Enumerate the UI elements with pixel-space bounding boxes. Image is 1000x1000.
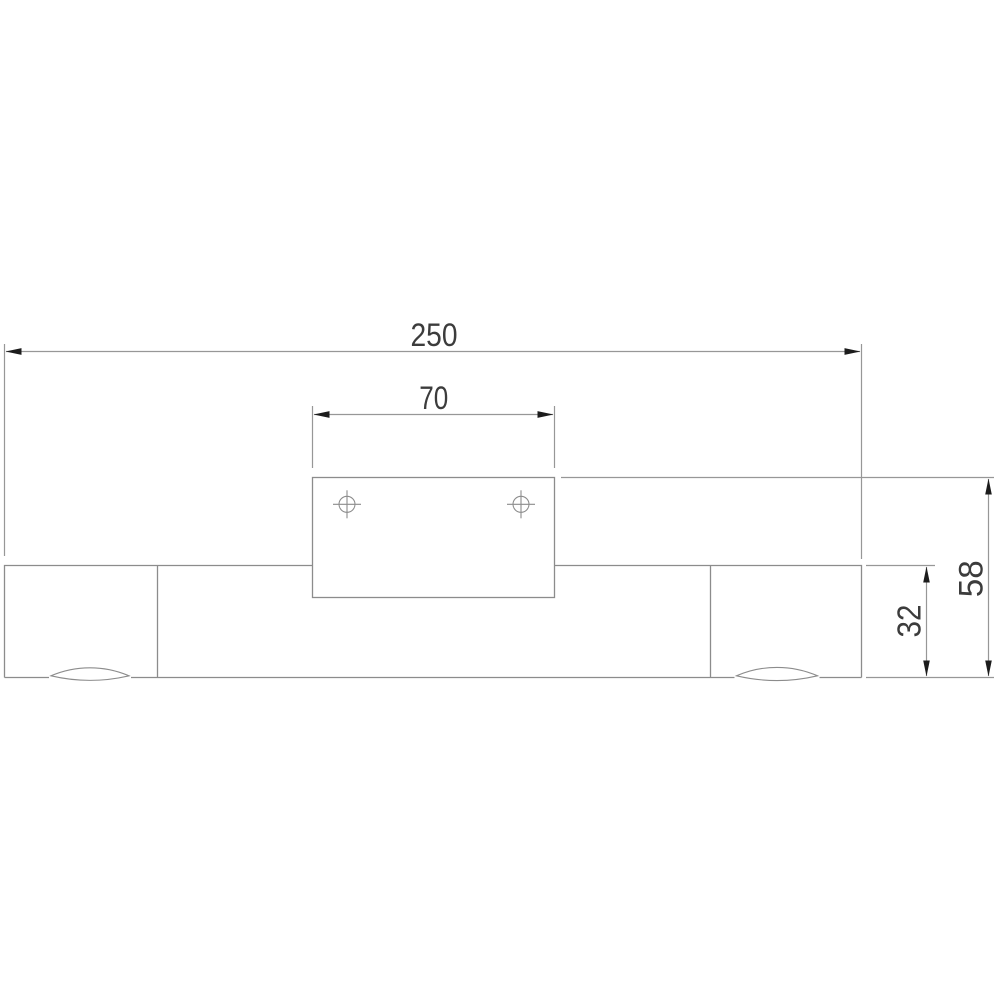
svg-text:58: 58 (953, 560, 991, 597)
svg-text:70: 70 (419, 380, 448, 416)
svg-text:250: 250 (411, 317, 458, 353)
svg-text:32: 32 (891, 605, 928, 638)
